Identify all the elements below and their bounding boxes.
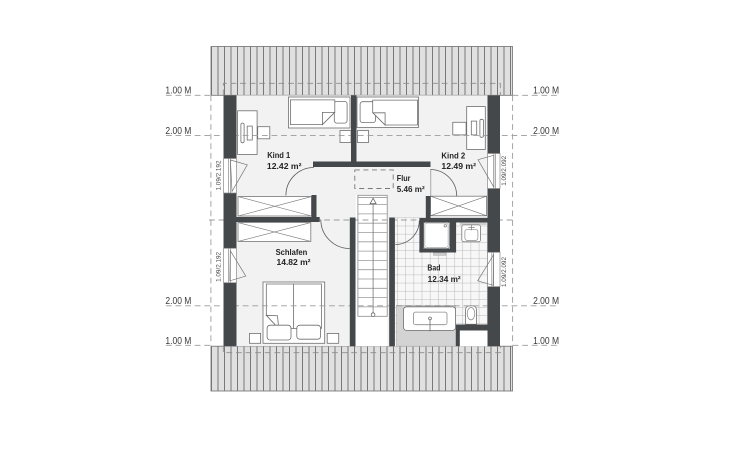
svg-text:Bad: Bad [427, 264, 440, 273]
svg-text:5.46 m²: 5.46 m² [397, 185, 425, 194]
svg-text:Flur: Flur [397, 174, 411, 183]
svg-text:12.42 m²: 12.42 m² [267, 162, 302, 171]
svg-text:12.34 m²: 12.34 m² [428, 275, 461, 284]
svg-text:1.09/2.192: 1.09/2.192 [215, 160, 222, 190]
svg-text:Kind 2: Kind 2 [441, 152, 465, 161]
svg-text:1.09/2.092: 1.09/2.092 [501, 155, 508, 185]
svg-text:Schlafen: Schlafen [276, 248, 308, 257]
svg-text:2.00 M: 2.00 M [533, 296, 559, 307]
svg-text:1.00 M: 1.00 M [533, 336, 559, 347]
svg-text:1.09/2.092: 1.09/2.092 [501, 257, 508, 287]
svg-text:12.49 m²: 12.49 m² [441, 162, 476, 171]
svg-text:Kind 1: Kind 1 [267, 151, 290, 160]
svg-text:14.82 m²: 14.82 m² [277, 258, 311, 267]
svg-text:1.00 M: 1.00 M [165, 85, 191, 96]
svg-text:2.00 M: 2.00 M [533, 126, 559, 137]
svg-text:1.09/2.192: 1.09/2.192 [215, 251, 222, 281]
svg-text:1.00 M: 1.00 M [533, 85, 559, 96]
svg-text:2.00 M: 2.00 M [165, 296, 191, 307]
svg-text:2.00 M: 2.00 M [165, 126, 191, 137]
svg-text:1.00 M: 1.00 M [165, 336, 191, 347]
